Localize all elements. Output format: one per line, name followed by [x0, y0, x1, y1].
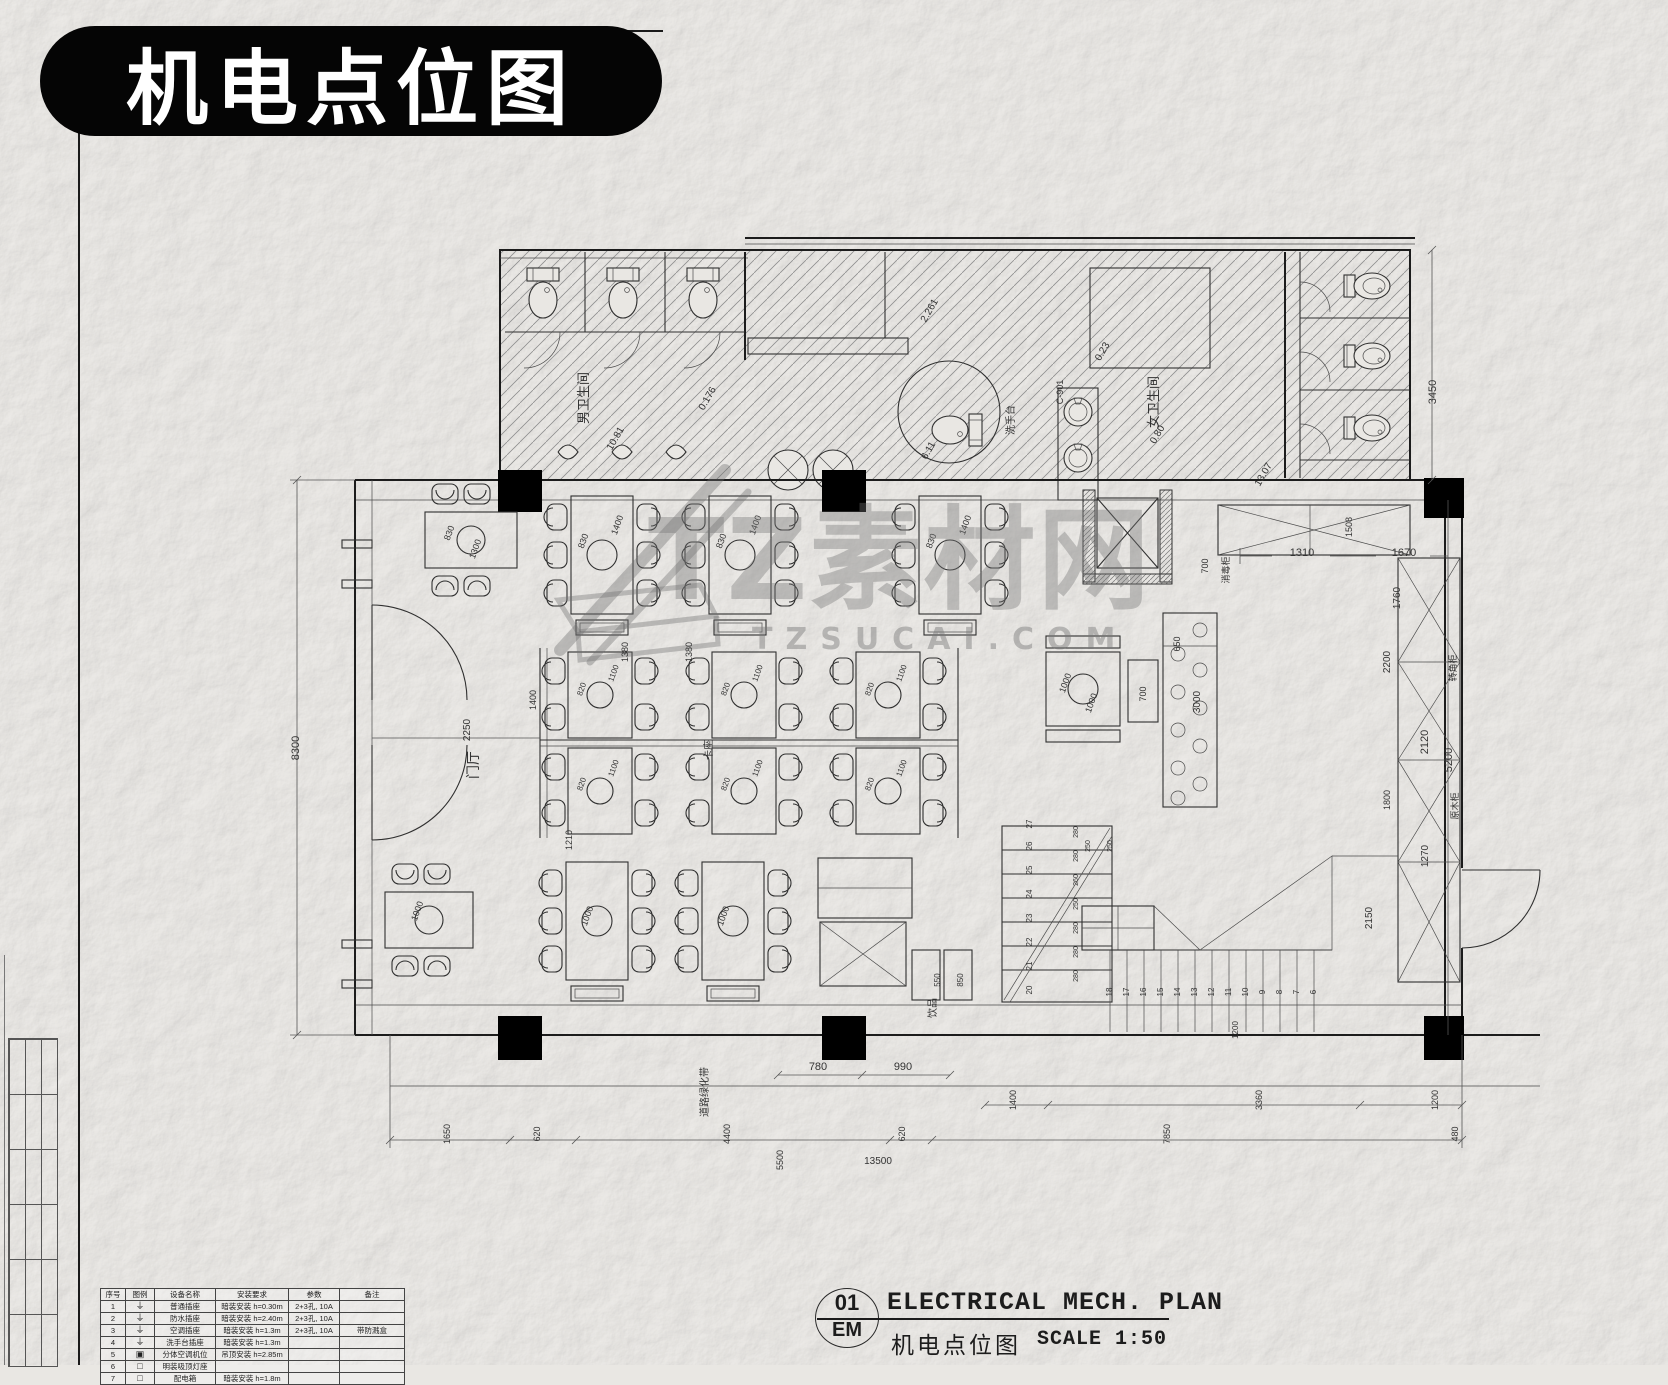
plan-label: 1270 — [1420, 844, 1431, 867]
plan-label: 6 — [1309, 989, 1318, 994]
plan-label: 1100 — [606, 663, 621, 683]
legend-header: 序号 — [101, 1289, 126, 1301]
plan-label: 1380 — [620, 642, 630, 662]
discipline-code: EM — [816, 1317, 878, 1343]
legend-cell: 明装吸顶灯座 — [155, 1361, 216, 1373]
plan-label: 3000 — [1192, 690, 1203, 713]
plan-label: C-901 — [1055, 380, 1065, 405]
plan-label: 7850 — [1162, 1124, 1172, 1144]
legend-symbol-icon: ⏚ — [126, 1313, 155, 1325]
plan-label: 洗手台 — [1004, 405, 1017, 435]
plan-label: 3450 — [1427, 380, 1439, 404]
plan-label: 5200 — [1443, 748, 1455, 772]
plan-label: 830 — [442, 524, 457, 542]
plan-label: 250 — [1073, 898, 1080, 910]
plan-label: 26 — [1025, 841, 1034, 850]
plan-label: 18 — [1105, 987, 1114, 996]
legend-row: 5▣分体空调机位吊顶安装 h=2.85m — [101, 1349, 405, 1361]
plan-label: 820 — [863, 681, 876, 697]
plan-label: 15 — [1156, 987, 1165, 996]
legend-cell: 配电箱 — [155, 1373, 216, 1385]
sheet: 机电点位图 TZ素材网 TZSUCAI.COM — [0, 0, 1668, 1365]
legend-cell: 暗装安装 h=2.40m — [216, 1313, 289, 1325]
legend-cell: 5 — [101, 1349, 126, 1361]
plan-label: 1300 — [467, 538, 483, 560]
dining-tables — [385, 484, 1158, 1001]
plan-label: 1760 — [1392, 586, 1403, 609]
plan-label: 1400 — [1008, 1090, 1018, 1110]
legend-cell: 吊顶安装 h=2.85m — [216, 1349, 289, 1361]
legend-cell — [340, 1361, 405, 1373]
plan-label: 13 — [1190, 987, 1199, 996]
plan-label: 8300 — [290, 736, 302, 760]
plan-label: 2150 — [1364, 906, 1375, 929]
plan-label: 550 — [933, 973, 942, 987]
plan-label: 1310 — [1290, 547, 1314, 559]
plan-label: 1100 — [750, 663, 765, 683]
plan-label: 2250 — [462, 718, 473, 741]
drawing-scale: SCALE 1:50 — [1037, 1328, 1167, 1351]
plan-label: 820 — [575, 681, 588, 697]
plan-label: 280 — [1073, 922, 1080, 934]
plan-label: 23 — [1025, 913, 1034, 922]
plan-label: 1100 — [606, 758, 621, 778]
plan-label: 14 — [1173, 987, 1182, 996]
plan-label: 280 — [1073, 826, 1080, 838]
drawing-number: 01 — [816, 1289, 878, 1317]
legend-cell: 2+3孔, 10A — [289, 1313, 340, 1325]
plan-label: 24 — [1025, 889, 1034, 898]
legend-row: 1⏚普通插座暗装安装 h=0.30m2+3孔, 10A — [101, 1301, 405, 1313]
plan-label: 1100 — [894, 663, 909, 683]
legend-cell: 6 — [101, 1361, 126, 1373]
plan-label: 260 — [1073, 874, 1080, 886]
plan-label: 17 — [1122, 987, 1131, 996]
plan-label: 1000 — [1057, 672, 1073, 694]
title-banner: 机电点位图 — [40, 26, 662, 136]
plan-label: 1000 — [1083, 692, 1099, 714]
plan-label: 1400 — [609, 514, 625, 536]
legend-cell: 分体空调机位 — [155, 1349, 216, 1361]
watermark-logo — [558, 470, 748, 662]
legend-cell — [289, 1349, 340, 1361]
plan-label: 820 — [863, 776, 876, 792]
plan-label: 1000 — [715, 905, 731, 927]
legend-cell: 暗装安装 h=1.3m — [216, 1325, 289, 1337]
legend-cell — [340, 1301, 405, 1313]
legend-cell — [340, 1313, 405, 1325]
legend-cell: 暗装安装 h=1.3m — [216, 1337, 289, 1349]
legend-row: 7□配电箱暗装安装 h=1.8m — [101, 1373, 405, 1385]
legend-symbol-icon: □ — [126, 1373, 155, 1385]
banner-title: 机电点位图 — [126, 22, 576, 141]
legend-cell — [289, 1337, 340, 1349]
legend-cell: 2 — [101, 1313, 126, 1325]
plan-label: 1670 — [1392, 547, 1416, 559]
plan-label: 2120 — [1419, 730, 1431, 754]
plan-label: 480 — [1450, 1126, 1460, 1141]
plan-label: 1000 — [579, 905, 595, 927]
plan-label: 12 — [1207, 987, 1216, 996]
plan-label: 650 — [1172, 636, 1182, 651]
plan-label: 1400 — [528, 690, 538, 710]
legend-header: 安装要求 — [216, 1289, 289, 1301]
plan-label: 2200 — [1382, 650, 1393, 673]
legend-cell: 洗手台插座 — [155, 1337, 216, 1349]
plan-label: 700 — [1138, 686, 1148, 701]
legend-cell: 4 — [101, 1337, 126, 1349]
legend-symbol-icon: □ — [126, 1361, 155, 1373]
legend-cell: 空调插座 — [155, 1325, 216, 1337]
drawing-title-en: ELECTRICAL MECH. PLAN — [887, 1288, 1223, 1317]
legend-cell: 防水插座 — [155, 1313, 216, 1325]
plan-label: 1100 — [750, 758, 765, 778]
plan-label: 13500 — [864, 1156, 892, 1167]
plan-label: 850 — [956, 973, 965, 987]
plan-label: 830 — [714, 532, 729, 550]
plan-label: 饮品 — [926, 998, 939, 1018]
legend-symbol-icon: ▣ — [126, 1349, 155, 1361]
plan-label: 门厅 — [465, 751, 481, 779]
plan-label: 20 — [1025, 985, 1034, 994]
plan-label: 3360 — [1254, 1090, 1264, 1110]
legend-cell — [289, 1361, 340, 1373]
toilet-band — [500, 238, 1415, 500]
plan-label: 16 — [1139, 987, 1148, 996]
legend-cell — [340, 1337, 405, 1349]
legend-header: 备注 — [340, 1289, 405, 1301]
plan-label: 原木柜 — [1449, 792, 1460, 819]
legend-cell: 普通插座 — [155, 1301, 216, 1313]
plan-label: 1210 — [564, 830, 574, 850]
plan-label: 620 — [532, 1126, 542, 1141]
plan-label: 280 — [1073, 946, 1080, 958]
plan-label: 4400 — [722, 1124, 732, 1144]
legend-cell — [289, 1373, 340, 1385]
plan-label: 25 — [1025, 865, 1034, 874]
legend-symbol-icon: ⏚ — [126, 1301, 155, 1313]
legend-cell: 2+3孔, 10A — [289, 1301, 340, 1313]
plan-label: 620 — [897, 1126, 907, 1141]
plan-label: 1100 — [894, 758, 909, 778]
plan-label: 1200 — [1430, 1090, 1440, 1110]
plan-label: 250 — [1107, 840, 1114, 852]
plan-label: 11 — [1224, 987, 1233, 996]
legend-header-row: 序号 图例 设备名称 安装要求 参数 备注 — [101, 1289, 405, 1301]
plan-label: 1000 — [409, 900, 425, 922]
plan-label: 1380 — [684, 642, 694, 662]
plan-label: 女卫生间 — [1146, 376, 1161, 428]
plan-label: 1200 — [1231, 1021, 1240, 1039]
legend-cell — [216, 1361, 289, 1373]
legend-table: 序号 图例 设备名称 安装要求 参数 备注 1⏚普通插座暗装安装 h=0.30m… — [100, 1288, 405, 1385]
plan-label: 280 — [1073, 850, 1080, 862]
plan-label: 830 — [576, 532, 591, 550]
stairs — [1002, 826, 1398, 1032]
plan-label: 10 — [1241, 987, 1250, 996]
legend-cell: 1 — [101, 1301, 126, 1313]
plan-label: 1650 — [442, 1124, 452, 1144]
plan-label: 830 — [924, 532, 939, 550]
legend-cell: 暗装安装 h=1.8m — [216, 1373, 289, 1385]
plan-label: 780 — [809, 1061, 827, 1073]
legend-row: 6□明装吸顶灯座 — [101, 1361, 405, 1373]
legend-cell: 3 — [101, 1325, 126, 1337]
drawing-title-zh: 机电点位图 — [891, 1326, 1021, 1360]
plan-label: 250 — [1085, 840, 1092, 852]
plan-label: 820 — [575, 776, 588, 792]
plan-label: 道路绿化带 — [698, 1067, 711, 1117]
plan-label: 7 — [1292, 989, 1301, 994]
legend-row: 3⏚空调插座暗装安装 h=1.3m2+3孔, 10A带防溅盒 — [101, 1325, 405, 1337]
plan-label: 卡座 — [702, 740, 715, 760]
legend-header: 参数 — [289, 1289, 340, 1301]
plan-label: 1400 — [957, 514, 973, 536]
plan-label: 21 — [1025, 961, 1034, 970]
plan-label: 820 — [719, 681, 732, 697]
legend-cell: 7 — [101, 1373, 126, 1385]
legend-cell: 带防溅盒 — [340, 1325, 405, 1337]
legend-header: 设备名称 — [155, 1289, 216, 1301]
plan-label: 男卫生间 — [576, 372, 591, 424]
legend-row: 2⏚防水插座暗装安装 h=2.40m2+3孔, 10A — [101, 1313, 405, 1325]
legend-cell: 2+3孔, 10A — [289, 1325, 340, 1337]
legend-cell — [340, 1349, 405, 1361]
legend-cell: 暗装安装 h=0.30m — [216, 1301, 289, 1313]
plan-label: 消毒柜 — [1220, 556, 1231, 583]
plan-label: 700 — [1200, 558, 1210, 573]
plan-label: 990 — [894, 1061, 912, 1073]
plan-label: 1508 — [1344, 517, 1354, 537]
floor-plan: 男卫生间女卫生间洗手台门厅卡座饮品道路绿化带消毒柜C-901转角柜原木柜10.8… — [0, 0, 1668, 1365]
plan-label: 9 — [1258, 989, 1267, 994]
legend-header: 图例 — [126, 1289, 155, 1301]
plan-label: 27 — [1025, 819, 1034, 828]
title-rule — [817, 1318, 1169, 1320]
plan-label: 1800 — [1382, 790, 1392, 810]
legend-row: 4⏚洗手台插座暗装安装 h=1.3m — [101, 1337, 405, 1349]
plan-label: 22 — [1025, 937, 1034, 946]
legend-symbol-icon: ⏚ — [126, 1325, 155, 1337]
plan-label: 5500 — [775, 1150, 785, 1170]
plan-label: 1400 — [747, 514, 763, 536]
plan-label: 转角柜 — [1447, 654, 1458, 681]
legend-cell — [340, 1373, 405, 1385]
plan-label: 8 — [1275, 989, 1284, 994]
legend-symbol-icon: ⏚ — [126, 1337, 155, 1349]
plan-label: 820 — [719, 776, 732, 792]
plan-label: 280 — [1073, 970, 1080, 982]
